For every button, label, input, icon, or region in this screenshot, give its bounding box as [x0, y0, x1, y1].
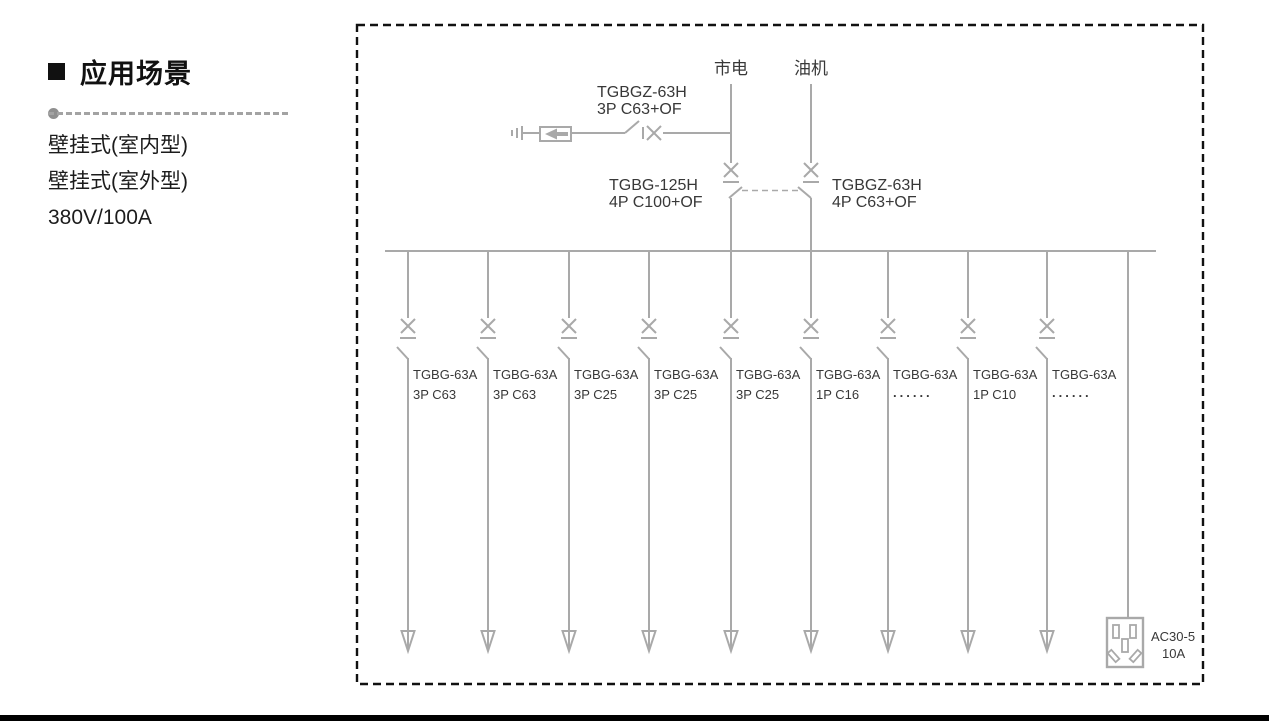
single-line-diagram: 市电 油机 [0, 0, 1269, 721]
socket-branch: AC30-5 10A [1107, 251, 1195, 667]
spd-device-icon [540, 127, 571, 141]
branch-model: TGBG-63A [893, 367, 958, 382]
generator-breaker-model: TGBGZ-63H [832, 177, 922, 194]
branch-circuit-1: TGBG-63A 3P C63 [397, 251, 478, 651]
mains-breaker-symbol [723, 163, 742, 198]
generator-breaker-spec: 4P C63+OF [832, 194, 917, 211]
branch-spec: 3P C63 [413, 387, 456, 402]
branch-circuit-9: TGBG-63A ...... [1036, 251, 1117, 651]
spd-branch [512, 121, 731, 141]
branch-circuit-3: TGBG-63A 3P C25 [558, 251, 639, 651]
spd-breaker-label: TGBGZ-63H 3P C63+OF [597, 84, 687, 118]
branch-spec: 3P C63 [493, 387, 536, 402]
socket-model: AC30-5 [1151, 629, 1195, 644]
socket-rating: 10A [1162, 646, 1185, 661]
branch-spec-ellipsis: ...... [893, 385, 933, 400]
mains-label: 市电 [714, 59, 748, 78]
socket-outlet-icon [1107, 618, 1143, 667]
branch-circuit-6: TGBG-63A 1P C16 [800, 251, 881, 651]
mains-breaker-label: TGBG-125H 4P C100+OF [609, 177, 703, 211]
branch-spec-ellipsis: ...... [1052, 385, 1092, 400]
page: 应用场景 壁挂式(室内型) 壁挂式(室外型) 380V/100A 市电 油机 [0, 0, 1269, 721]
spd-breaker-model: TGBGZ-63H [597, 84, 687, 101]
branch-circuit-5: TGBG-63A 3P C25 [720, 251, 801, 651]
generator-breaker-label: TGBGZ-63H 4P C63+OF [832, 177, 922, 211]
branch-model: TGBG-63A [493, 367, 558, 382]
branch-circuit-4: TGBG-63A 3P C25 [638, 251, 719, 651]
branch-circuit-2: TGBG-63A 3P C63 [477, 251, 558, 651]
bottom-rule-bar [0, 715, 1269, 721]
branch-model: TGBG-63A [973, 367, 1038, 382]
branch-circuit-8: TGBG-63A 1P C10 [957, 251, 1038, 651]
generator-breaker-symbol [798, 163, 819, 198]
branch-model: TGBG-63A [654, 367, 719, 382]
spd-breaker-symbol [625, 121, 661, 140]
branch-spec: 1P C16 [816, 387, 859, 402]
branch-model: TGBG-63A [816, 367, 881, 382]
branch-model: TGBG-63A [1052, 367, 1117, 382]
generator-label: 油机 [794, 59, 828, 78]
branch-circuit-7: TGBG-63A ...... [877, 251, 958, 651]
ground-icon [512, 126, 522, 140]
branch-spec: 3P C25 [736, 387, 779, 402]
mains-breaker-spec: 4P C100+OF [609, 194, 703, 211]
branch-spec: 3P C25 [654, 387, 697, 402]
spd-breaker-spec: 3P C63+OF [597, 101, 682, 118]
mains-breaker-model: TGBG-125H [609, 177, 698, 194]
branch-spec: 1P C10 [973, 387, 1016, 402]
branch-model: TGBG-63A [413, 367, 478, 382]
branch-spec: 3P C25 [574, 387, 617, 402]
branch-model: TGBG-63A [574, 367, 639, 382]
branch-model: TGBG-63A [736, 367, 801, 382]
